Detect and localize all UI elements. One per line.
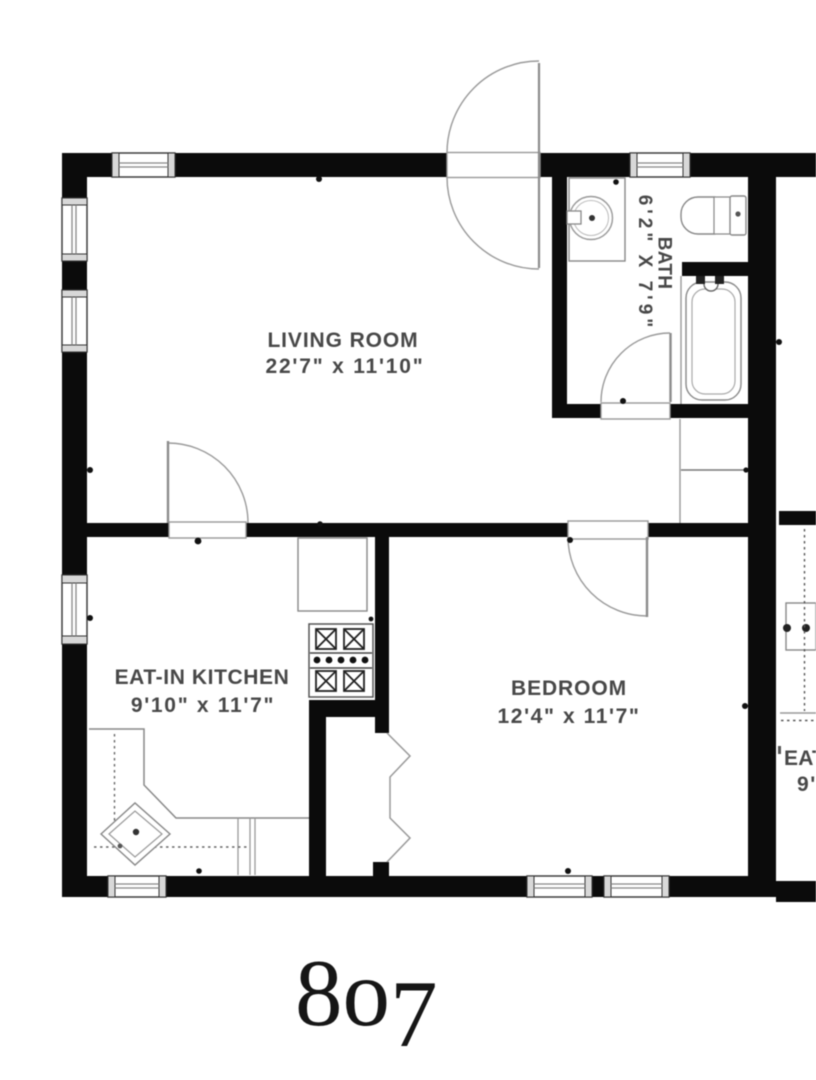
svg-text:9'10" x 11'7": 9'10" x 11'7" (797, 773, 816, 796)
svg-text:22'7" x 11'10": 22'7" x 11'10" (265, 355, 424, 378)
svg-text:12'4" x 11'7": 12'4" x 11'7" (498, 705, 641, 728)
svg-text:BATH: BATH (654, 237, 675, 290)
svg-text:LIVING ROOM: LIVING ROOM (267, 329, 418, 352)
svg-text:BEDROOM: BEDROOM (511, 677, 627, 700)
svg-text:EAT-IN KITCHEN: EAT-IN KITCHEN (115, 666, 290, 689)
svg-text:6'2" X 7'9": 6'2" X 7'9" (634, 195, 655, 332)
svg-text:EAT-IN KITCHEN: EAT-IN KITCHEN (784, 747, 816, 770)
svg-text:9'10" x 11'7": 9'10" x 11'7" (131, 694, 275, 717)
